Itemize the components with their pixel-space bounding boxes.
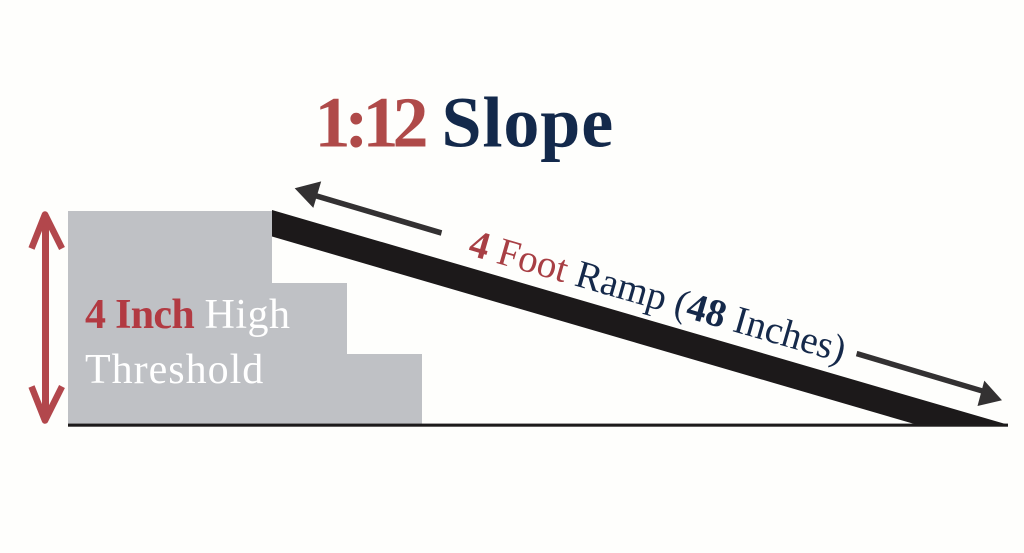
svg-text:High: High <box>205 292 291 338</box>
svg-text:Threshold: Threshold <box>85 347 264 393</box>
svg-text:1:12: 1:12 <box>315 83 426 163</box>
svg-text:Slope: Slope <box>442 83 615 163</box>
svg-text:4 Inch: 4 Inch <box>85 292 194 338</box>
